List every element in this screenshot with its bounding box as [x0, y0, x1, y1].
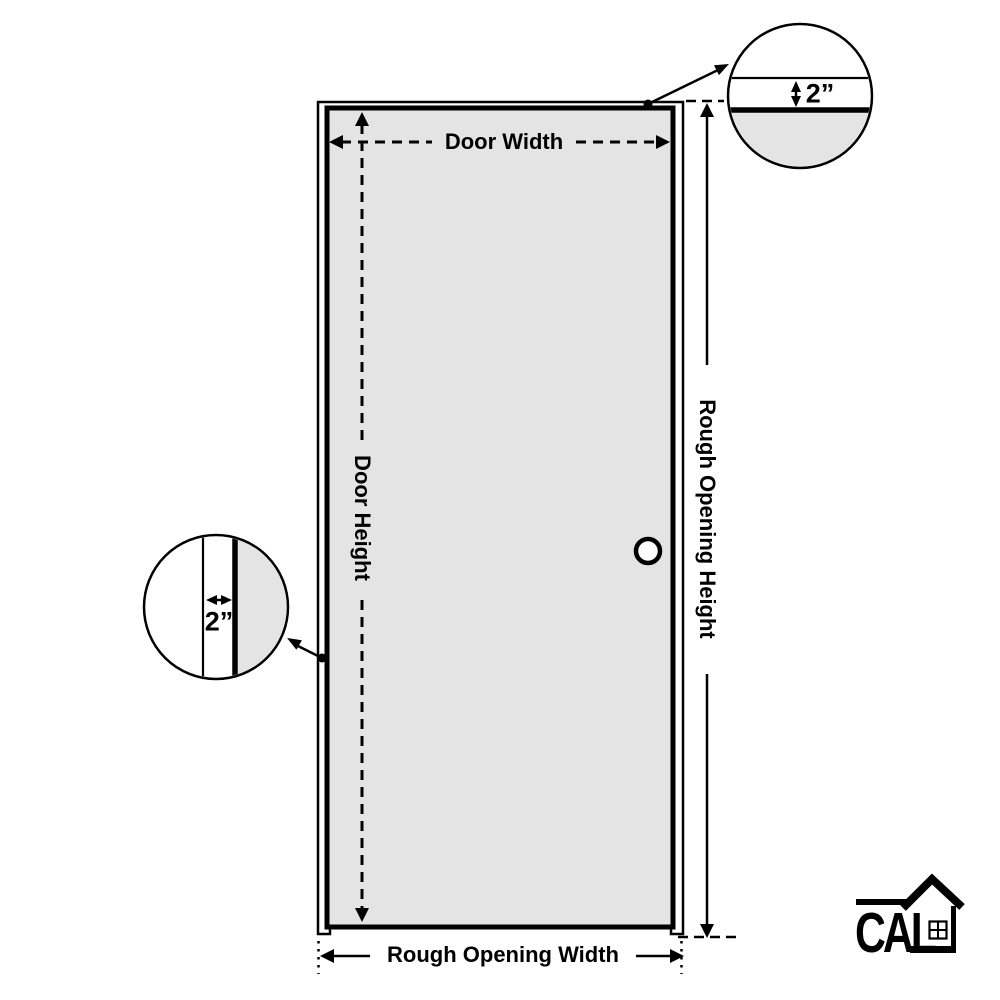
rough-opening-width-label: Rough Opening Width: [387, 942, 619, 968]
arrow-up-right-icon: [714, 64, 729, 75]
house-right-wall: [951, 906, 956, 953]
door-panel: [327, 108, 673, 927]
arrow-up-icon: [700, 103, 714, 117]
door-measurement-diagram: Door Width Door Height Rough Opening Hei…: [0, 0, 1000, 1000]
head-jamb-measurement: 2”: [806, 79, 835, 110]
side-jamb-callout-leader: [287, 638, 327, 663]
leader-line: [648, 70, 718, 104]
door-height-label: Door Height: [349, 455, 375, 581]
head-jamb-callout: [726, 24, 876, 173]
arrow-left-icon: [320, 949, 334, 963]
door-knob-icon: [636, 539, 660, 563]
door-width-label: Door Width: [445, 129, 563, 155]
rough-opening-height-label: Rough Opening Height: [694, 399, 720, 639]
cal-logo-text: CAL: [855, 905, 934, 962]
side-jamb-measurement: 2”: [205, 607, 234, 638]
